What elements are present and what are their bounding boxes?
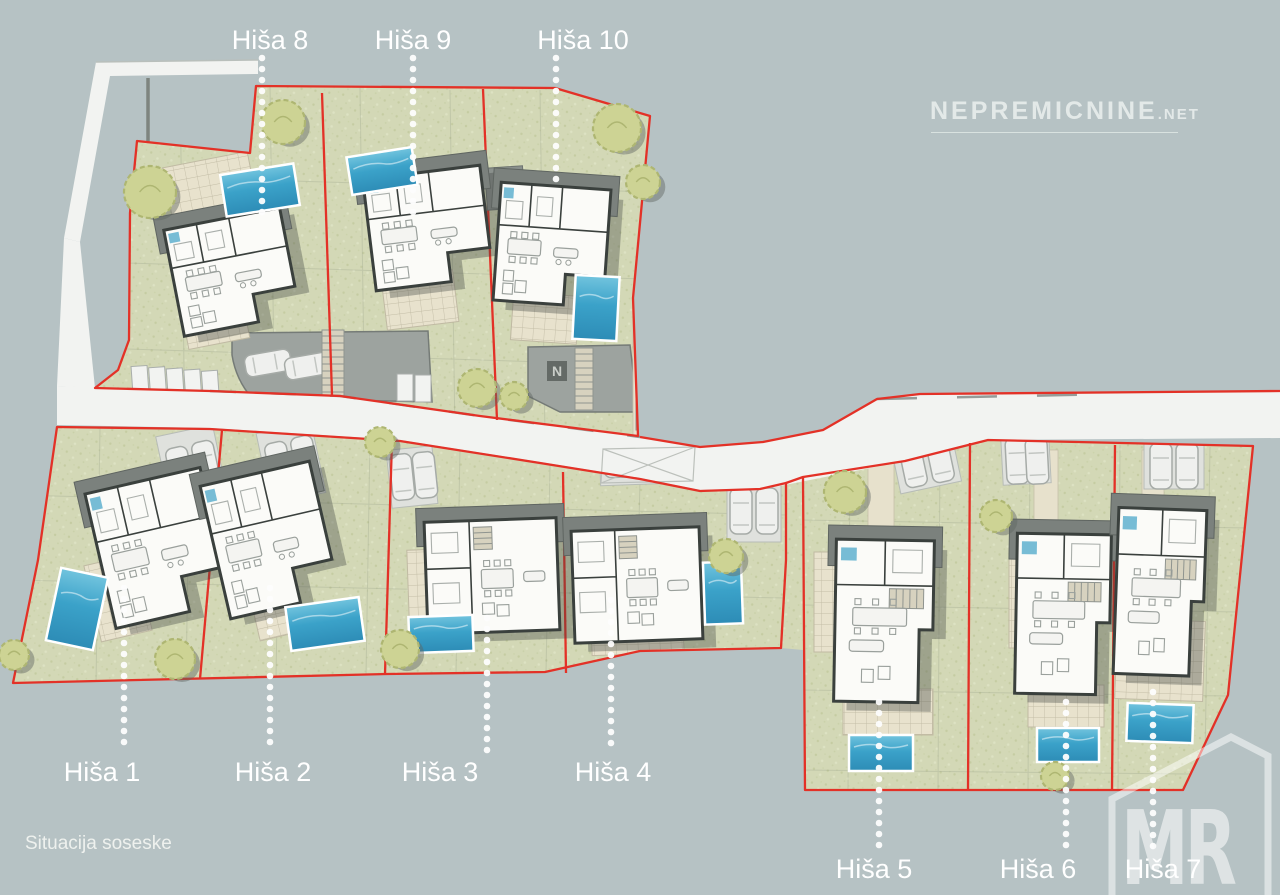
watermark-suffix: .NET xyxy=(1158,106,1200,123)
house-label-8: Hiša 8 xyxy=(232,25,309,55)
house-label-9: Hiša 9 xyxy=(375,25,452,55)
pool-10 xyxy=(572,275,619,341)
car xyxy=(756,488,778,534)
house-footprint-6 xyxy=(1006,519,1124,704)
watermark-underline xyxy=(931,132,1178,133)
car xyxy=(1176,443,1198,489)
house-label-2: Hiša 2 xyxy=(235,757,312,787)
car xyxy=(1150,443,1172,489)
house-label-6: Hiša 6 xyxy=(1000,854,1077,884)
car xyxy=(389,453,416,501)
pool-7 xyxy=(1126,703,1193,743)
stairs xyxy=(322,330,344,396)
plan-caption: Situacija soseske xyxy=(25,833,172,855)
car xyxy=(730,488,752,534)
north-marker: N xyxy=(547,361,567,381)
house-label-4: Hiša 4 xyxy=(575,757,652,787)
house-label-3: Hiša 3 xyxy=(402,757,479,787)
house-label-5: Hiša 5 xyxy=(836,854,913,884)
house-label-7: Hiša 7 xyxy=(1125,854,1202,884)
house-label-10: Hiša 10 xyxy=(537,25,629,55)
stairs xyxy=(575,348,593,410)
pool-2 xyxy=(285,597,364,651)
watermark-text: NEPREMICNINE xyxy=(930,97,1158,125)
house-footprint-4 xyxy=(563,512,717,652)
car xyxy=(1025,437,1049,484)
house-label-1: Hiša 1 xyxy=(64,757,141,787)
nepremicnine-watermark: NEPREMICNINE.NET xyxy=(930,97,1200,126)
svg-text:N: N xyxy=(552,363,562,379)
house-footprint-5 xyxy=(825,525,947,712)
car xyxy=(412,451,439,499)
site-plan: N MR Hiša 1Hiša 2Hiša 3Hiša 4Hiša 5Hiša … xyxy=(0,0,1280,895)
